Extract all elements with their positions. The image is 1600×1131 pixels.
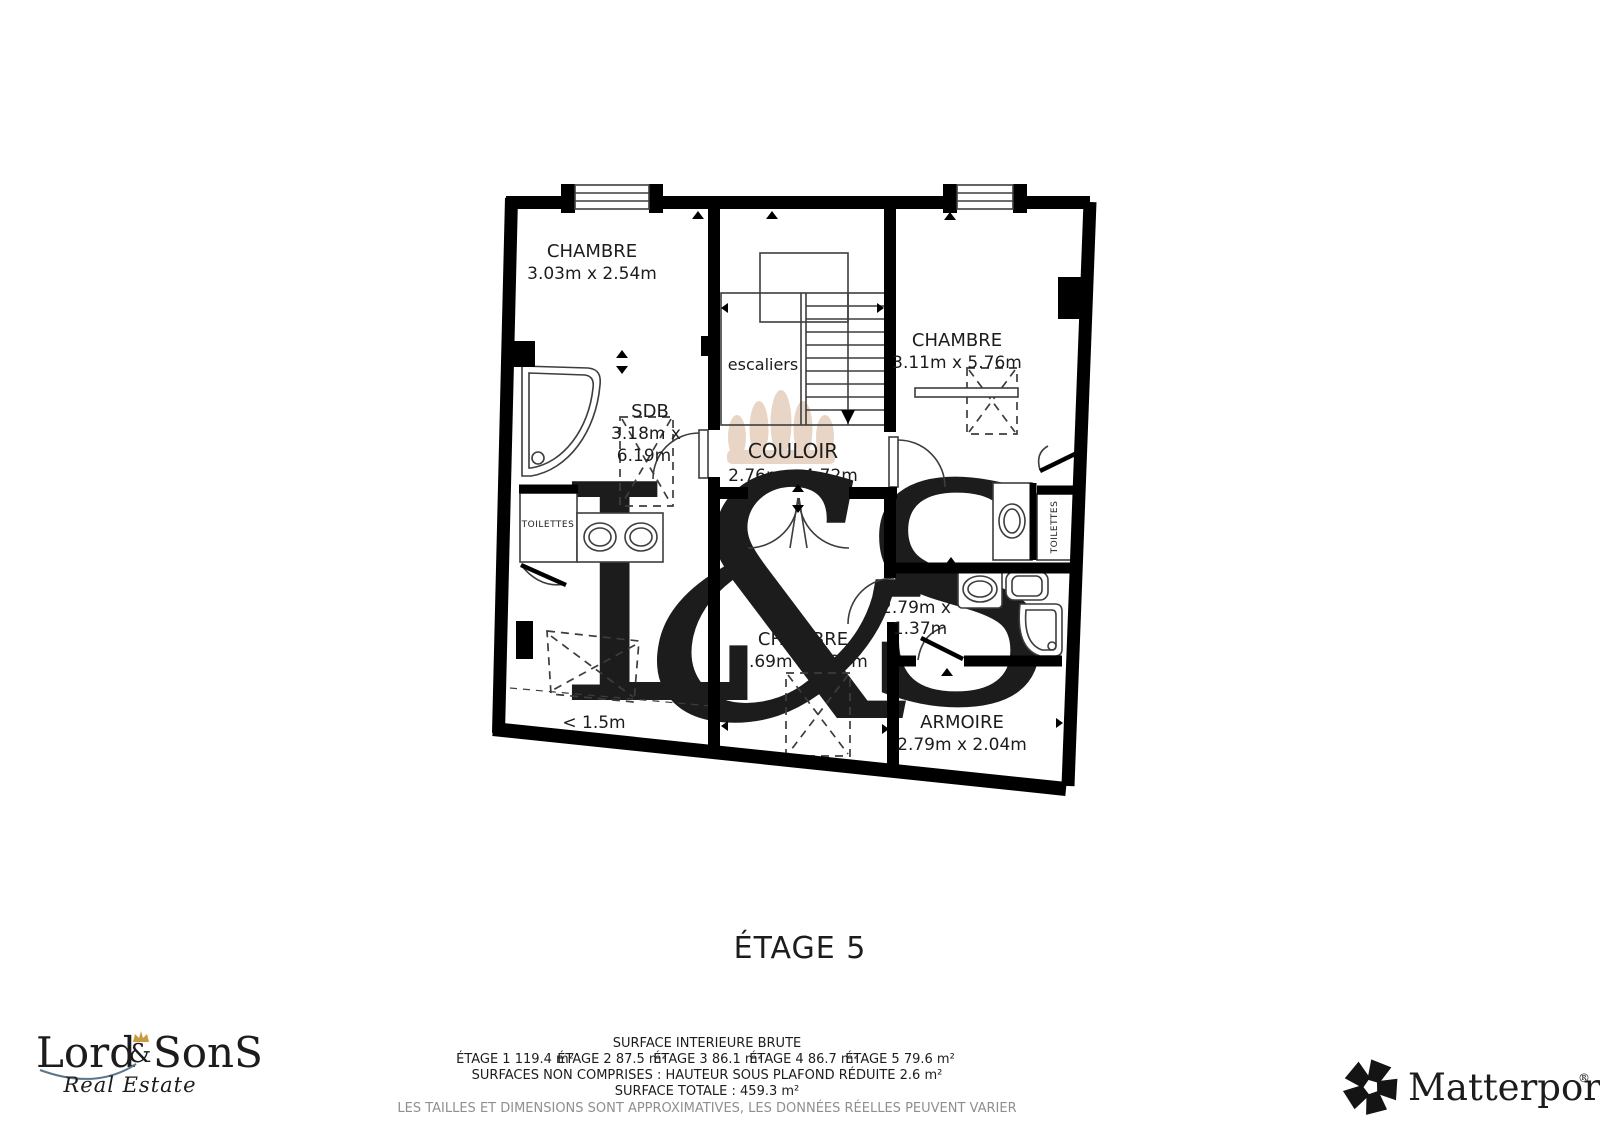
room-chambre-bottom-name: CHAMBRE bbox=[758, 629, 848, 650]
desk bbox=[915, 388, 1018, 397]
surface-etage-3: ÉTAGE 3 86.1 m² bbox=[653, 1051, 763, 1067]
room-armoire-dims: 2.79m x 2.04m bbox=[897, 735, 1027, 755]
lordsons-logo: Lord & SonS Real Estate bbox=[36, 1028, 263, 1097]
matterport-wordmark: Matterport bbox=[1408, 1066, 1600, 1109]
wall-stub-passage bbox=[701, 336, 714, 356]
matterport-registered-mark: ® bbox=[1578, 1071, 1590, 1085]
room-chambre-bottom-dims: 2.69m x 4.29m bbox=[738, 652, 868, 672]
chimney-left bbox=[516, 621, 533, 659]
room-escaliers-label: escaliers bbox=[728, 355, 798, 374]
matterport-pinwheel-icon bbox=[1330, 1050, 1411, 1130]
room-couloir-dims: 2.76m x 4.72m bbox=[728, 466, 858, 486]
floorplan-page: L & S bbox=[0, 0, 1600, 1131]
lordsons-tagline: Real Estate bbox=[62, 1073, 196, 1097]
room-sdb-right-name: SDB bbox=[901, 575, 939, 596]
disclaimer-text: LES TAILLES ET DIMENSIONS SONT APPROXIMA… bbox=[397, 1100, 1016, 1116]
room-couloir-name: COULOIR bbox=[748, 439, 838, 463]
floorplan-canvas: L & S bbox=[0, 0, 1600, 1131]
floor-title: ÉTAGE 5 bbox=[734, 930, 867, 966]
lordsons-wordmark-part1: Lord bbox=[36, 1028, 136, 1077]
surface-etage-2: ÉTAGE 2 87.5 m² bbox=[557, 1051, 667, 1067]
room-sdb-right-dims2: 1.37m bbox=[893, 619, 947, 639]
room-chambre-right-dims: 3.11m x 5.76m bbox=[892, 353, 1022, 373]
lordsons-ampersand: & bbox=[128, 1039, 151, 1069]
room-sdb-right-dims1: 2.79m x bbox=[881, 598, 951, 618]
toilet-right bbox=[993, 483, 1032, 560]
room-sdb-left-name: SDB bbox=[631, 401, 669, 422]
window-top-left bbox=[575, 185, 649, 209]
surface-etage-5: ÉTAGE 5 79.6 m² bbox=[845, 1051, 955, 1067]
surface-heading: SURFACE INTERIEURE BRUTE bbox=[613, 1036, 801, 1051]
room-toilettes-right-label: TOILETTES bbox=[1050, 501, 1060, 555]
chimney-right bbox=[1058, 277, 1084, 319]
matterport-logo: Matterport ® bbox=[1330, 1050, 1600, 1130]
surface-excluded: SURFACES NON COMPRISES : HAUTEUR SOUS PL… bbox=[472, 1067, 943, 1083]
sink-right bbox=[958, 570, 1002, 608]
room-armoire-name: ARMOIRE bbox=[920, 712, 1004, 733]
surface-total: SURFACE TOTALE : 459.3 m² bbox=[615, 1084, 800, 1099]
lordsons-wordmark-part2: SonS bbox=[153, 1028, 263, 1077]
room-chambre-right-name: CHAMBRE bbox=[912, 330, 1002, 351]
room-toilettes-left-label: TOILETTES bbox=[521, 520, 575, 530]
room-sdb-left-dims2: 6.19m bbox=[617, 446, 671, 466]
staircase bbox=[721, 253, 885, 425]
room-chambre-top-left-dims: 3.03m x 2.54m bbox=[527, 264, 657, 284]
wc-right bbox=[1006, 572, 1048, 600]
double-sink-counter bbox=[577, 513, 663, 562]
wall-stub-left bbox=[507, 341, 535, 367]
reduced-height-label: < 1.5m bbox=[562, 713, 625, 733]
surface-summary: SURFACE INTERIEURE BRUTE ÉTAGE 1 119.4 m… bbox=[397, 1036, 1016, 1116]
surface-etage-4: ÉTAGE 4 86.7 m² bbox=[749, 1051, 859, 1067]
room-chambre-top-left-name: CHAMBRE bbox=[547, 241, 637, 262]
window-top-right bbox=[957, 185, 1013, 209]
room-sdb-left-dims1: 3.18m x bbox=[611, 424, 681, 444]
